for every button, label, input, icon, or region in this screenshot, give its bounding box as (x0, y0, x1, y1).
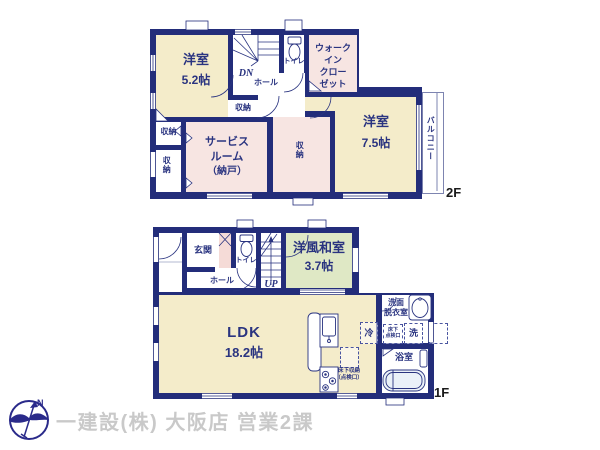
label-2f-wic-line3: クロー (310, 67, 356, 77)
label-2f-closet-b: 収納 (156, 127, 181, 136)
label-2f-service-line1: サービス (192, 136, 262, 149)
label-2f-toilet: トイレ (281, 58, 307, 66)
label-2f-closet-a: 収納 (228, 103, 258, 112)
label-2f-stairs-dn: DN (236, 68, 256, 80)
label-1f-washitsu-name: 洋風和室 (289, 241, 349, 256)
label-1f-senmen-line1: 洗面 (383, 298, 409, 307)
door-arcs (159, 73, 396, 311)
footer-company-text: 一建設(株) 大阪店 営業2課 (56, 406, 314, 435)
floor-plan-canvas: 冷 床下 点検口 洗 (0, 0, 600, 450)
label-floor-1f: 1F (434, 385, 449, 400)
label-1f-ldk-size: 18.2帖 (214, 346, 274, 361)
toilet-icon-1f (240, 235, 253, 257)
plan-linework: N (0, 0, 600, 450)
label-balcony: バルコニー (426, 116, 435, 161)
label-2f-wic-line1: ウォーク (310, 43, 356, 53)
label-2f-closet-d: 収納 (295, 141, 304, 159)
label-2f-wic-line4: ゼット (310, 79, 356, 89)
label-1f-bath: 浴室 (388, 352, 420, 362)
label-1f-washitsu-size: 3.7帖 (295, 260, 343, 274)
label-2f-wic-line2: イン (310, 55, 356, 65)
label-underfloor-storage-line1: 床下収納 (333, 368, 365, 374)
washbasin-icon (409, 295, 431, 320)
stairs-1f-icon (261, 233, 281, 285)
label-2f-yoshitsu52-name: 洋室 (176, 53, 216, 68)
label-1f-genkan: 玄関 (189, 245, 217, 255)
label-underfloor-storage-line2: （点検口） (333, 375, 365, 381)
label-1f-toilet: トイレ (233, 257, 259, 265)
label-2f-yoshitsu75-size: 7.5帖 (352, 137, 400, 151)
label-1f-senmen-line2: 脱衣室 (381, 308, 411, 317)
label-1f-stairs-up: UP (260, 279, 282, 291)
stairs-2f-icon (233, 35, 279, 66)
label-2f-yoshitsu75-name: 洋室 (354, 115, 398, 130)
label-2f-closet-c: 収納 (162, 156, 171, 174)
label-floor-2f: 2F (446, 185, 461, 200)
label-2f-service-line2: ルーム (192, 151, 262, 164)
label-1f-hall: ホール (204, 276, 240, 285)
label-1f-ldk-name: LDK (220, 324, 268, 341)
label-2f-yoshitsu52-size: 5.2帖 (172, 74, 220, 88)
compass-north-label: N (37, 398, 44, 408)
compass-icon: N (9, 398, 49, 439)
label-2f-service-line3: （納戸） (192, 166, 262, 178)
toilet-icon-2f (288, 37, 301, 60)
